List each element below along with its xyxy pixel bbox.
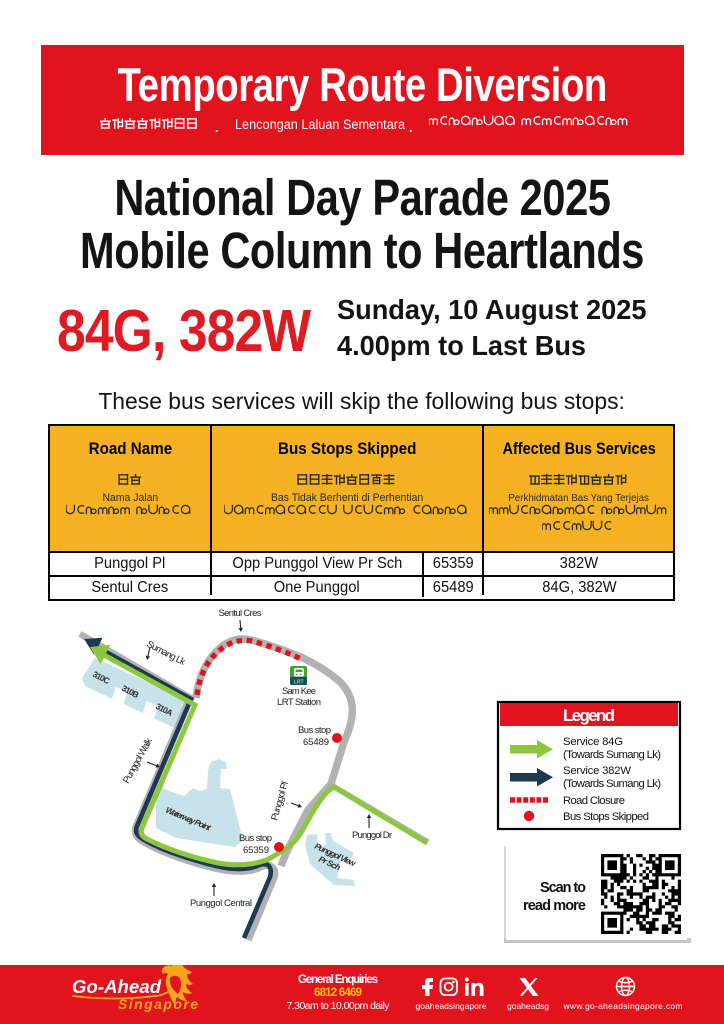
svg-text:Punggol Central: Punggol Central [190,898,252,909]
svg-text:Service 84G: Service 84G [563,736,623,748]
svg-text:Service 382W: Service 382W [563,765,631,777]
svg-text:65359: 65359 [243,845,269,856]
svg-text:Legend: Legend [563,706,615,725]
svg-text:Bus stop: Bus stop [239,833,272,844]
svg-text:Scan to: Scan to [540,880,586,896]
svg-text:Punggol Walk: Punggol Walk [121,736,155,785]
svg-text:(Towards Sumang Lk): (Towards Sumang Lk) [563,778,661,790]
svg-text:read more: read more [523,898,586,914]
svg-text:goaheadsingapore: goaheadsingapore [416,1001,487,1011]
svg-text:Singapore: Singapore [118,996,198,1012]
svg-text:goaheadsg: goaheadsg [507,1001,549,1011]
svg-text:General Enquiries: General Enquiries [298,974,378,986]
svg-text:Sam Kee: Sam Kee [282,686,316,697]
svg-text:LRT Station: LRT Station [277,697,321,708]
svg-text:7.30am to 10.00pm daily: 7.30am to 10.00pm daily [287,1000,391,1012]
svg-text:Sentul Cres: Sentul Cres [219,608,262,619]
svg-text:Bus stop: Bus stop [298,725,331,736]
svg-text:Sumang Lk: Sumang Lk [145,639,188,668]
svg-text:Punggol Dr: Punggol Dr [352,830,392,841]
svg-text:(Towards Sumang Lk): (Towards Sumang Lk) [563,749,661,761]
svg-text:Road Closure: Road Closure [563,795,625,807]
svg-text:Bus Stops Skipped: Bus Stops Skipped [563,811,649,823]
svg-text:www.go-aheadsingapore.com: www.go-aheadsingapore.com [563,1001,683,1011]
svg-text:LRT: LRT [294,680,304,686]
svg-text:6812 6469: 6812 6469 [314,987,362,999]
svg-text:65489: 65489 [303,737,329,748]
svg-text:Go-Ahead: Go-Ahead [72,976,162,997]
svg-text:Punggol Pl: Punggol Pl [269,780,291,821]
